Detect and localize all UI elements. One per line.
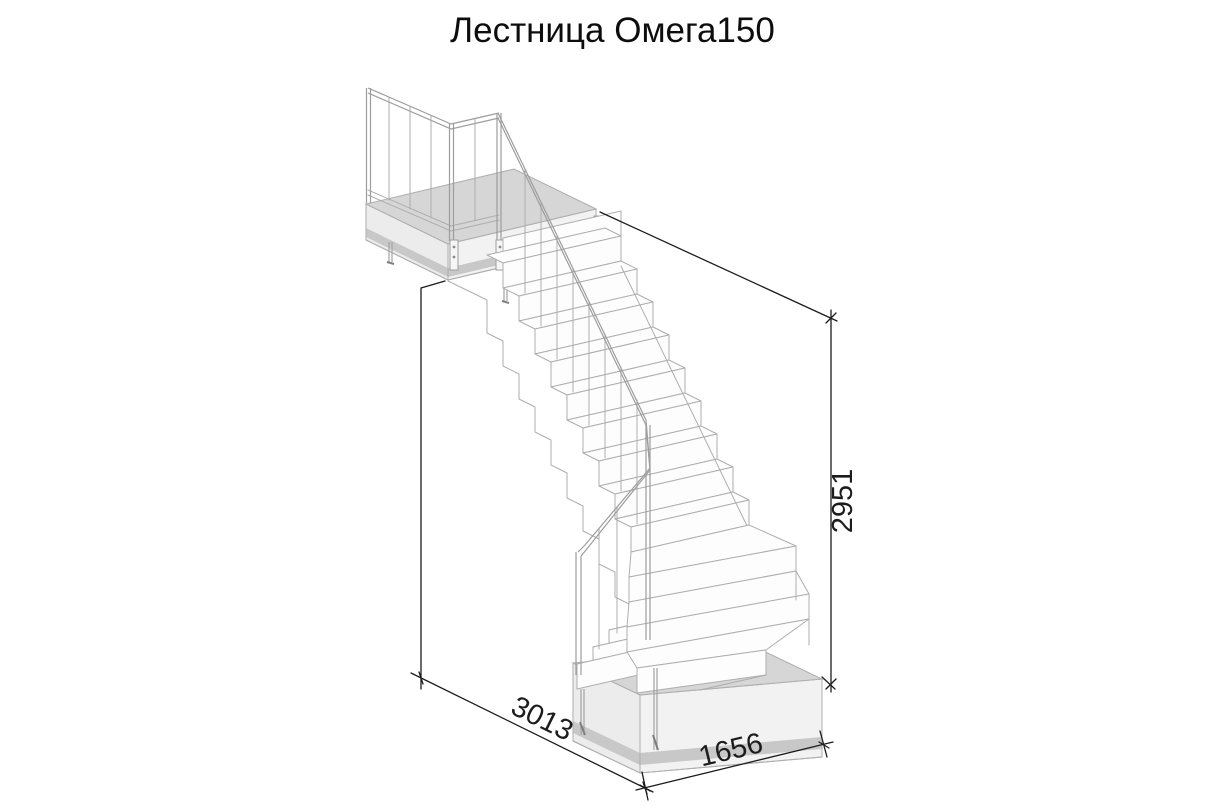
dimension-height-label: 2951 — [827, 469, 859, 534]
drawing-page: Лестница Омега150 — [0, 0, 1207, 806]
staircase-technical-drawing: 2951 3013 1656 — [0, 0, 1207, 806]
dimension-length-label: 3013 — [506, 690, 578, 747]
